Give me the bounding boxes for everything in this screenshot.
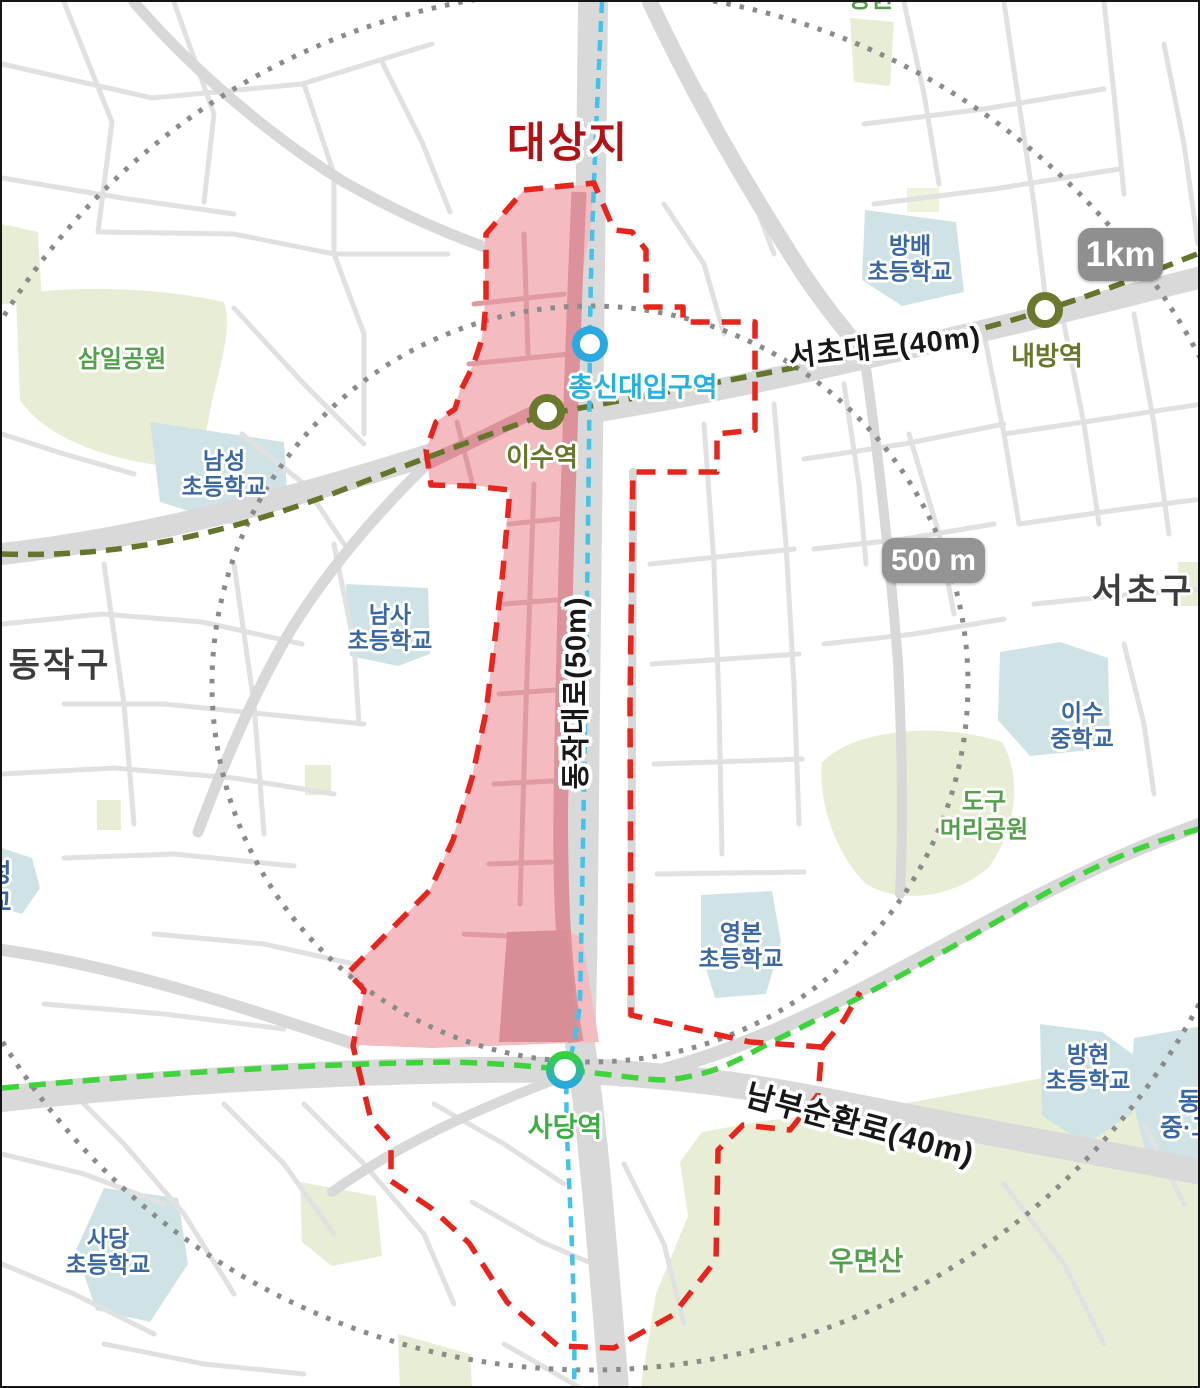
map-canvas[interactable]: 대상지 동작구 서초구 총신대입구역 이수역 내방역 사당역 서초대로(40m)… xyxy=(0,0,1200,1388)
station-label-naebang: 내방역 xyxy=(1011,342,1083,372)
district-label-dongjak: 동작구 xyxy=(9,646,112,685)
radius-badge-1km: 1km xyxy=(1078,228,1163,281)
school-label-bangbae: 방배초등학교 xyxy=(868,233,953,286)
school-label-namsa: 남사초등학교 xyxy=(348,602,433,655)
station-marker-isu xyxy=(533,398,561,426)
district-label-seocho: 서초구 xyxy=(1092,572,1195,611)
radius-badge-1km-text: 1km xyxy=(1085,235,1155,275)
station-label-sadang: 사당역 xyxy=(528,1112,603,1143)
school-label-dongdeok-partial-2: 중·고 xyxy=(1160,1108,1200,1144)
park-label-samil: 삼일공원 xyxy=(78,346,166,374)
school-label-banghyeon: 방현초등학교 xyxy=(1046,1042,1131,1095)
park-label-top-partial: 공원 xyxy=(849,0,893,14)
school-label-yeongbon: 영본초등학교 xyxy=(699,920,784,973)
radius-badge-500m-text: 500 m xyxy=(891,544,976,578)
school-label-west-partial: 성교 xyxy=(0,859,12,917)
station-marker-chongshin xyxy=(576,330,604,358)
target-site-label: 대상지 xyxy=(507,119,629,167)
school-label-sadang: 사당초등학교 xyxy=(66,1226,151,1279)
site-block-sadang xyxy=(499,930,579,1042)
road-label-dongjak: 동작대로(50m) xyxy=(560,596,593,789)
station-label-isu: 이수역 xyxy=(506,443,578,473)
radius-badge-500m: 500 m xyxy=(882,538,985,583)
station-marker-sadang xyxy=(550,1055,580,1085)
map-graphics xyxy=(2,2,1200,1388)
park-label-umyeonsan: 우면산 xyxy=(829,1246,904,1277)
school-label-isu-middle: 이수중학교 xyxy=(1050,700,1113,753)
station-label-chongshin: 총신대입구역 xyxy=(568,372,717,403)
station-marker-naebang xyxy=(1031,296,1059,324)
school-label-namseong: 남성초등학교 xyxy=(182,448,267,501)
park-label-dogumeori: 도구머리공원 xyxy=(940,788,1028,843)
